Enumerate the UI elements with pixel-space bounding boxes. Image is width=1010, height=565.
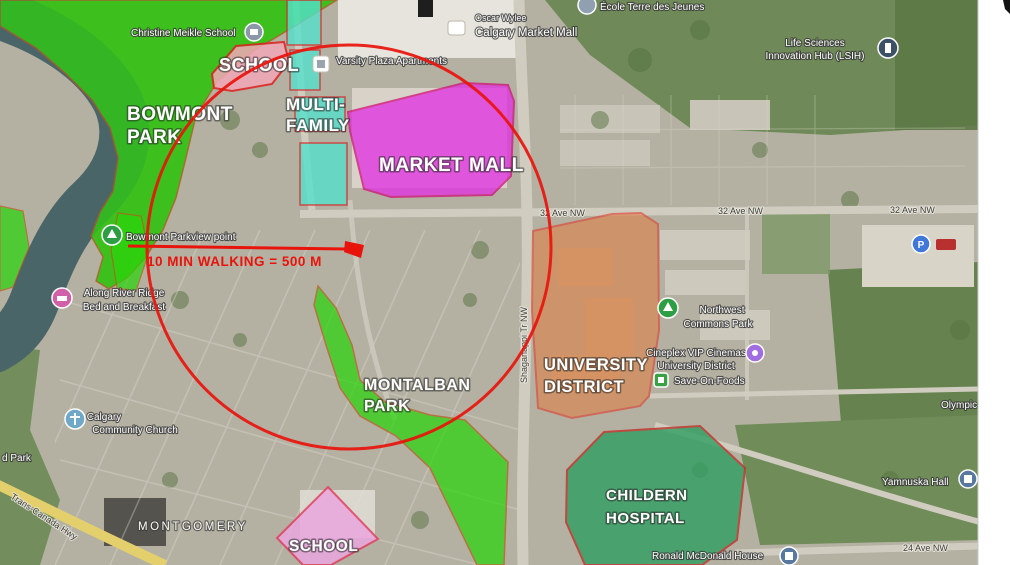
page-margin xyxy=(978,0,1010,565)
walking-distance-label: 10 MIN WALKING = 500 M xyxy=(147,254,322,269)
poi-cineplex-line2[interactable]: University District xyxy=(657,361,734,372)
label-shaganappi: Shaganappi Tr NW xyxy=(519,306,529,383)
hospital-label-1: CHILDERN xyxy=(606,487,688,504)
red-tag-icon xyxy=(936,239,956,250)
multi-family-label-2: FAMILY xyxy=(286,116,350,135)
poi-ecole-terre[interactable]: École Terre des Jeunes xyxy=(600,0,704,13)
poi-life-sciences-line1[interactable]: Life Sciences xyxy=(785,38,844,49)
building-icon xyxy=(418,0,433,17)
map-canvas[interactable]: Christine Meikle School École Terre des … xyxy=(0,0,1010,565)
poi-christine-meikle[interactable]: Christine Meikle School xyxy=(131,28,236,39)
hospital-label-2: HOSPITAL xyxy=(606,510,685,527)
poi-church-line2[interactable]: Community Church xyxy=(92,425,178,436)
multi-family-label-1: MULTI- xyxy=(286,95,345,114)
poi-nw-commons-line2[interactable]: Commons Park xyxy=(684,319,754,330)
montalban-label-1: MONTALBAN xyxy=(364,377,470,394)
label-32ave-3: 32 Ave NW xyxy=(890,205,935,215)
poi-oscar-wylee[interactable]: Oscar Wylee xyxy=(475,13,526,23)
poi-save-on-foods[interactable]: Save-On-Foods xyxy=(674,376,745,387)
poi-church-line1[interactable]: Calgary xyxy=(87,412,121,423)
poi-bowmont-viewpoint[interactable]: Bowmont Parkview point xyxy=(126,232,236,243)
poi-olympic[interactable]: Olympic xyxy=(941,400,977,411)
poi-yamnuska-hall[interactable]: Yamnuska Hall xyxy=(882,477,949,488)
bowmont-park-label-1: BOWMONT xyxy=(127,104,233,125)
white-margin-strip xyxy=(978,0,1010,565)
montalban-label-2: PARK xyxy=(364,398,410,415)
basket-icon xyxy=(658,377,664,383)
poi-life-sciences-line2[interactable]: Innovation Hub (LSIH) xyxy=(766,51,865,62)
poi-nw-commons-line1[interactable]: Northwest xyxy=(699,305,744,316)
label-24ave: 24 Ave NW xyxy=(903,543,948,553)
school-pin-icon[interactable] xyxy=(578,0,596,14)
market-mall-label: MARKET MALL xyxy=(379,155,524,176)
poi-park-fragment: d Park xyxy=(2,453,32,464)
poi-cineplex-line1[interactable]: Cineplex VIP Cinemas xyxy=(646,348,746,359)
label-montgomery: MONTGOMERY xyxy=(138,521,248,533)
parking-letter: P xyxy=(918,240,925,251)
university-label-2: DISTRICT xyxy=(544,378,624,396)
poi-ronald-mcdonald[interactable]: Ronald McDonald House xyxy=(652,551,764,562)
flask-icon xyxy=(885,43,891,53)
poi-calgary-market-mall[interactable]: Calgary Market Mall xyxy=(475,27,577,39)
poi-along-river-line2[interactable]: Bed and Breakfast xyxy=(83,302,165,313)
school-south-label: SCHOOL xyxy=(289,538,358,555)
university-label-1: UNIVERSITY xyxy=(544,356,648,374)
store-icon xyxy=(448,21,465,35)
mortarboard-icon xyxy=(250,29,258,35)
map-screenshot: Christine Meikle School École Terre des … xyxy=(0,0,1010,565)
label-32ave-2: 32 Ave NW xyxy=(718,206,763,216)
bed-icon xyxy=(57,296,67,301)
